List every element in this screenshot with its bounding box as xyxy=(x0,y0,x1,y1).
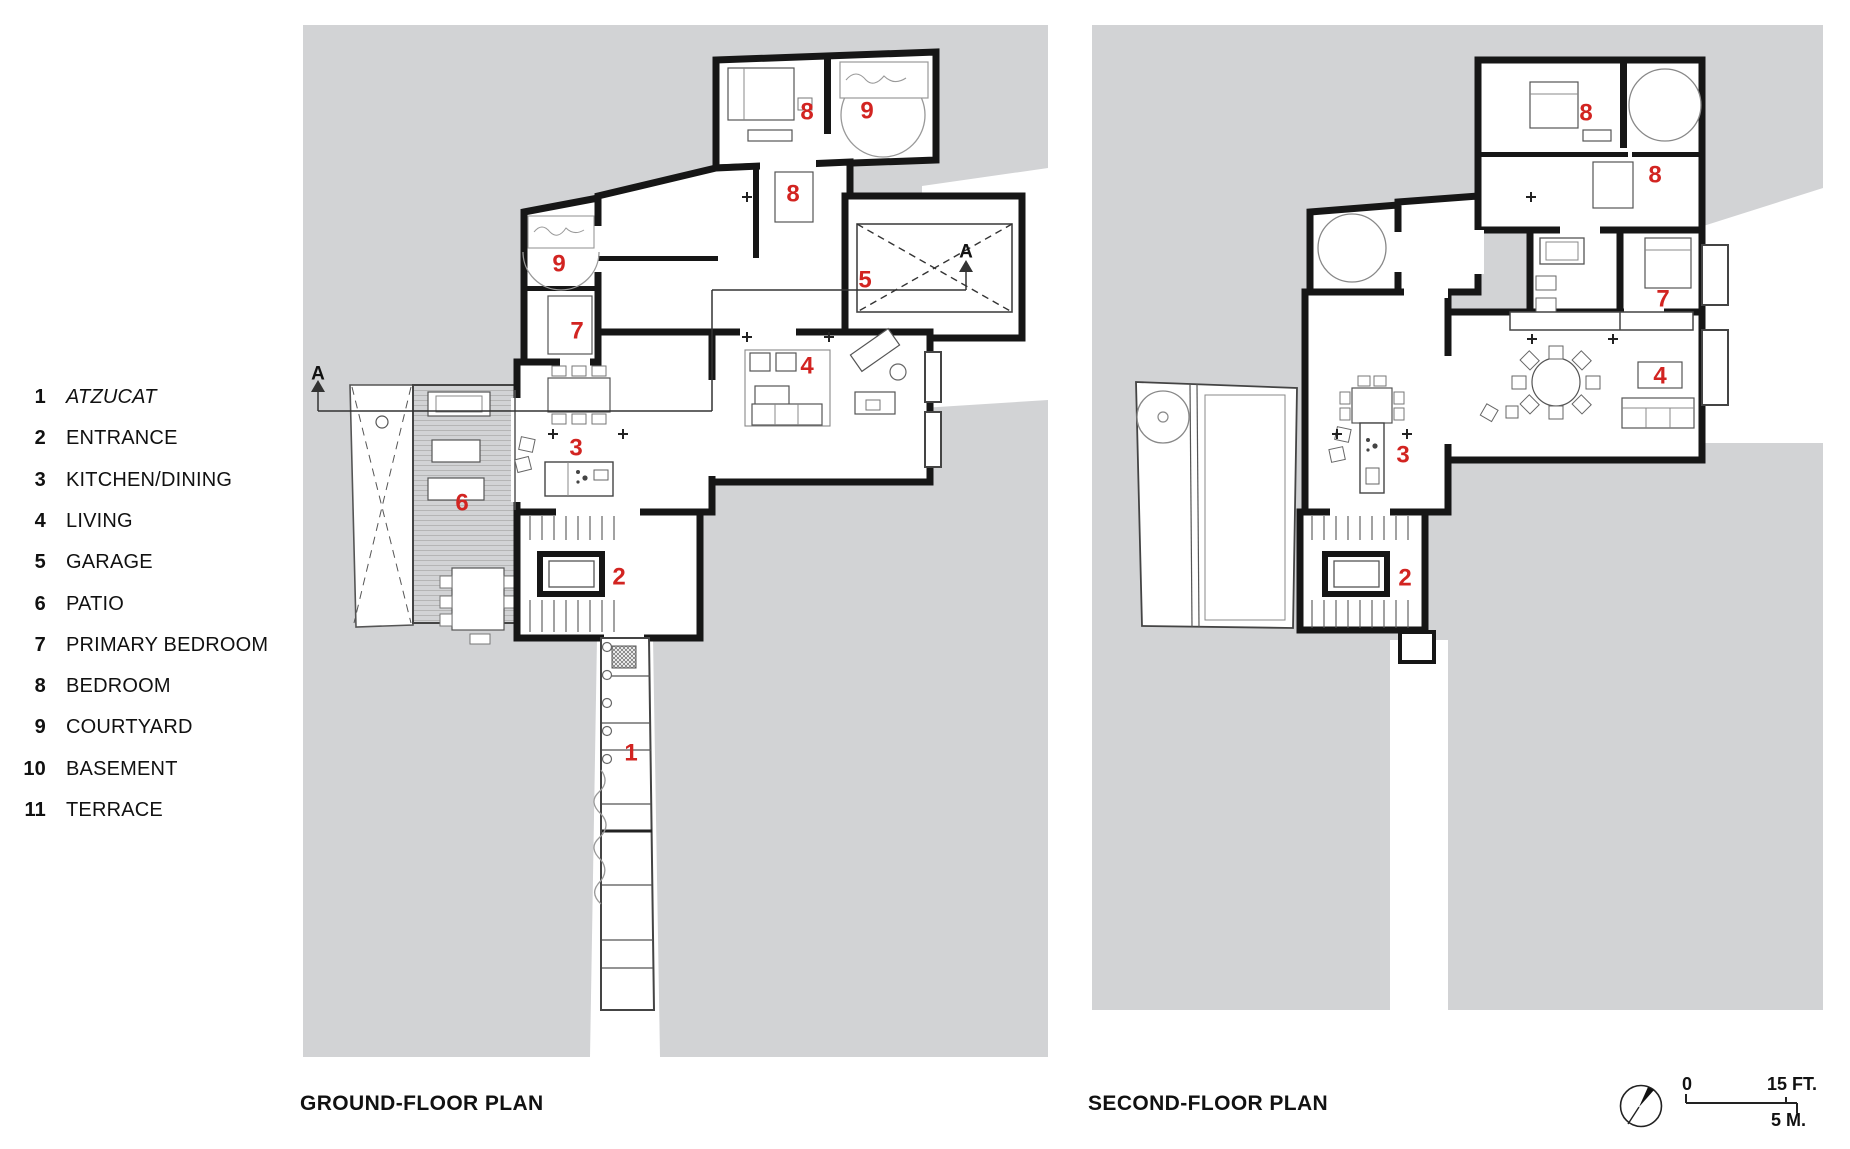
legend-item-label: COURTYARD xyxy=(66,716,193,739)
legend-item-number: 8 xyxy=(22,675,46,698)
legend-item: 5GARAGE xyxy=(22,551,153,575)
legend-item-number: 4 xyxy=(22,510,46,533)
ground-floor-plan-title: GROUND-FLOOR PLAN xyxy=(300,1092,544,1116)
second-floor-plan-title: SECOND-FLOOR PLAN xyxy=(1088,1092,1328,1116)
room-number-label: 8 xyxy=(1579,100,1592,127)
legend-item-label: GARAGE xyxy=(66,551,153,574)
legend-item-label: LIVING xyxy=(66,510,133,533)
scale-feet-label: 15 FT. xyxy=(1755,1074,1817,1095)
legend-item: 4LIVING xyxy=(22,510,133,534)
legend-item-number: 5 xyxy=(22,551,46,574)
legend-item-number: 6 xyxy=(22,593,46,616)
room-number-label: 8 xyxy=(1648,162,1661,189)
legend-item: 3KITCHEN/DINING xyxy=(22,469,232,493)
second-floor-plan-drawing: 887432 xyxy=(0,0,1850,1149)
legend-item-number: 3 xyxy=(22,469,46,492)
legend-item-label: PRIMARY BEDROOM xyxy=(66,634,268,657)
legend-item-label: ENTRANCE xyxy=(66,427,178,450)
room-number-label: 7 xyxy=(1656,286,1669,313)
scale-bar: 0 15 FT. 5 M. xyxy=(1600,1070,1850,1145)
legend-item-number: 1 xyxy=(22,386,46,409)
legend-item: 10BASEMENT xyxy=(22,758,178,782)
room-number-label: 3 xyxy=(1396,442,1409,469)
legend-item-label: ATZUCAT xyxy=(66,386,157,409)
legend-item-number: 11 xyxy=(22,799,46,822)
legend-item-number: 9 xyxy=(22,716,46,739)
legend-item-label: PATIO xyxy=(66,593,124,616)
legend-item: 9COURTYARD xyxy=(22,716,193,740)
legend-item-label: BASEMENT xyxy=(66,758,178,781)
room-number-label: 4 xyxy=(1653,363,1667,390)
terrace xyxy=(1136,382,1297,628)
floor-plan-sheet: 89859743621AA xyxy=(0,0,1850,1149)
legend-item-label: KITCHEN/DINING xyxy=(66,469,232,492)
legend-item: 6PATIO xyxy=(22,593,124,617)
legend-item: 7PRIMARY BEDROOM xyxy=(22,634,268,658)
legend-item: 1ATZUCAT xyxy=(22,386,157,410)
legend-item-label: BEDROOM xyxy=(66,675,171,698)
room-number-label: 2 xyxy=(1398,565,1411,592)
legend-item-number: 2 xyxy=(22,427,46,450)
legend-item: 2ENTRANCE xyxy=(22,427,178,451)
legend-item-label: TERRACE xyxy=(66,799,163,822)
legend-item-number: 7 xyxy=(22,634,46,657)
legend-item: 11TERRACE xyxy=(22,799,163,823)
north-arrow-icon xyxy=(1621,1086,1662,1127)
legend-item-number: 10 xyxy=(22,758,46,781)
legend-item: 8BEDROOM xyxy=(22,675,171,699)
scale-meters-label: 5 M. xyxy=(1750,1110,1806,1131)
scale-zero-label: 0 xyxy=(1682,1074,1692,1095)
